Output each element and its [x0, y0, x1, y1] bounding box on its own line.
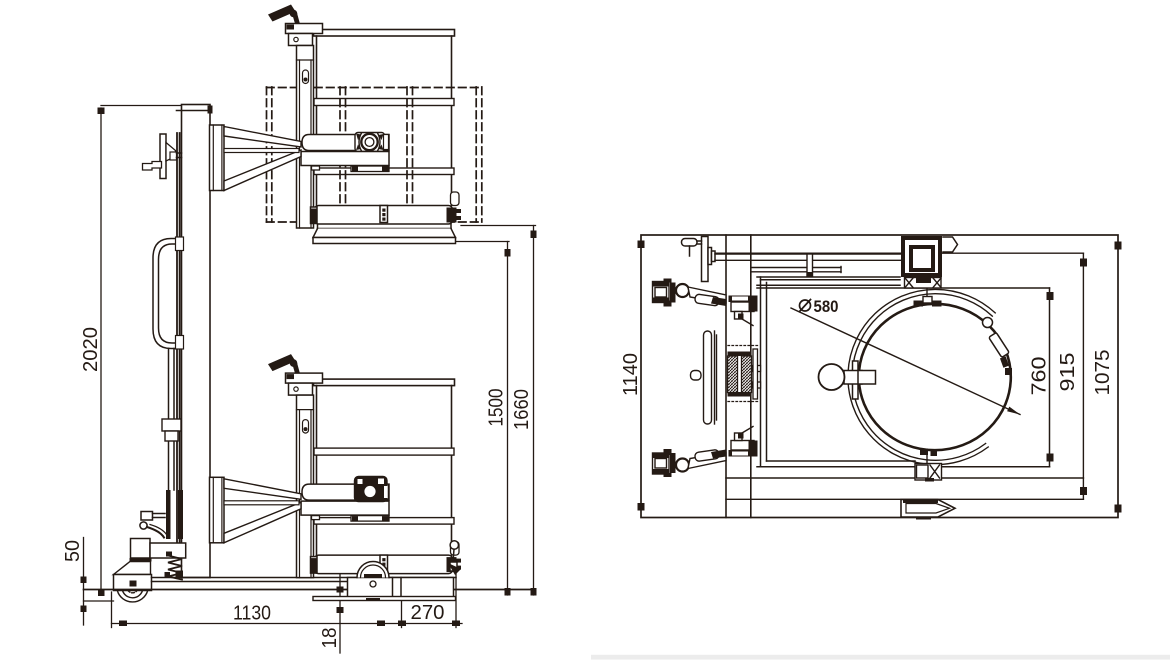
svg-text:2020: 2020	[80, 327, 102, 372]
svg-text:270: 270	[411, 602, 445, 624]
svg-text:580: 580	[814, 297, 839, 316]
svg-text:1660: 1660	[511, 389, 533, 430]
svg-text:1500: 1500	[486, 389, 508, 427]
svg-text:50: 50	[62, 540, 84, 562]
svg-text:18: 18	[319, 628, 341, 649]
svg-text:915: 915	[1057, 353, 1079, 392]
svg-text:1140: 1140	[620, 353, 642, 396]
svg-text:1130: 1130	[233, 603, 271, 625]
svg-text:760: 760	[1029, 357, 1051, 396]
svg-text:1075: 1075	[1092, 350, 1114, 396]
